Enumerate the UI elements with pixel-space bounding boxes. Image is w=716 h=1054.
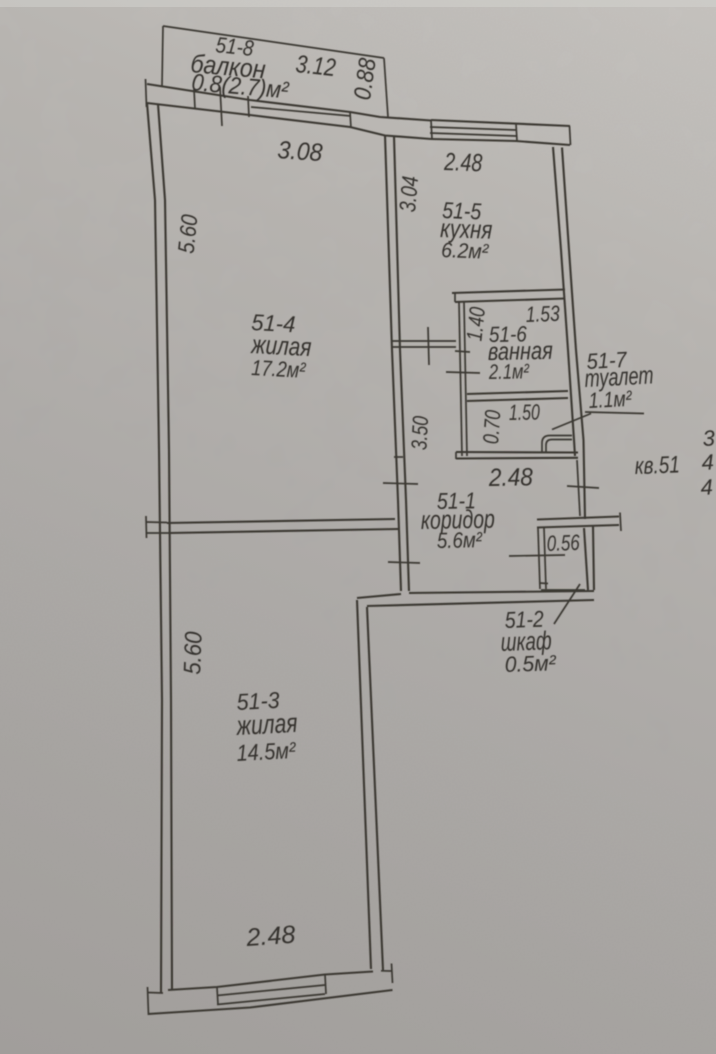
svg-text:2.48: 2.48 [244,921,296,952]
svg-text:1.50: 1.50 [509,399,541,425]
svg-text:0.56: 0.56 [546,530,580,556]
svg-text:1.53: 1.53 [525,301,560,327]
svg-text:кв.51: кв.51 [634,451,680,480]
svg-text:2.48: 2.48 [488,463,533,492]
svg-text:17.2м²: 17.2м² [251,355,307,383]
svg-text:3.04: 3.04 [394,175,423,213]
svg-text:1.1м²: 1.1м² [588,386,633,413]
svg-text:2.1м²: 2.1м² [488,360,530,384]
svg-text:14.5м²: 14.5м² [236,737,297,766]
svg-text:2.48: 2.48 [443,148,483,177]
svg-text:6.2м²: 6.2м² [441,239,490,264]
svg-text:5.60: 5.60 [173,213,203,255]
svg-text:4: 4 [701,449,715,475]
svg-text:0.5м²: 0.5м² [504,650,556,677]
svg-text:1.40: 1.40 [462,305,490,342]
svg-text:0.70: 0.70 [478,409,505,445]
svg-text:5.60: 5.60 [179,630,208,675]
svg-text:3.50: 3.50 [406,415,433,451]
svg-text:3.08: 3.08 [277,136,324,167]
svg-text:5.6м²: 5.6м² [437,527,483,553]
svg-text:жилая: жилая [235,708,298,741]
svg-text:4: 4 [700,474,714,500]
svg-text:3.12: 3.12 [294,50,337,82]
svg-text:3: 3 [702,425,716,451]
